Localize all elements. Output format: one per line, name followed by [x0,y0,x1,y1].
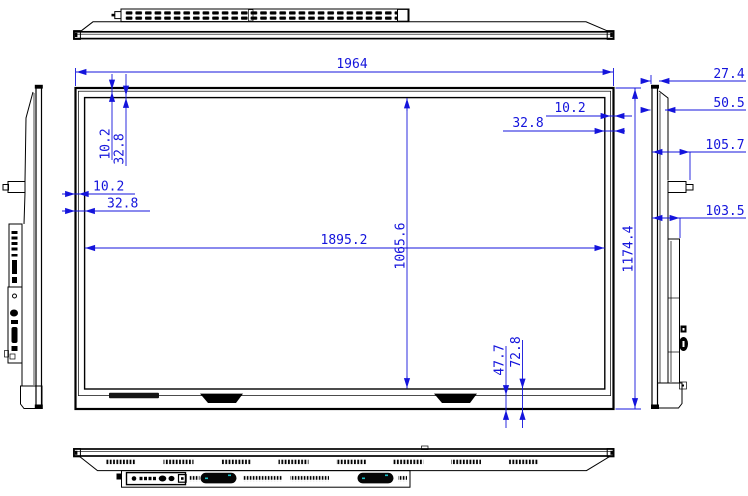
bottom-bezel-insert-right [434,394,477,403]
bottom-view [74,446,614,487]
bottom-io-panel [127,473,187,485]
dim-bezel-left-inner-label: 10.2 [93,180,124,195]
right-back-shell [659,91,680,383]
right-glass-profile [652,88,658,408]
drawing-sheet: 1964 1895.2 1065.6 1174.4 10.2 [0,0,748,496]
dim-overall-width: 1964 [76,57,614,86]
dim-bezel-bottom: 47.7 72.8 [493,336,525,428]
top-body [80,22,610,32]
bottom-bezel-insert-left [200,394,243,403]
dim-bezel-top-inner-label: 10.2 [99,128,114,159]
dimensions: 1964 1895.2 1065.6 1174.4 10.2 [62,57,746,428]
dim-bezel-bottom-inner-label: 47.7 [493,344,508,375]
dim-depth-back: 103.5 [652,204,746,238]
dim-bezel-left-outer-label: 32.8 [107,197,138,212]
dim-active-width-label: 1895.2 [321,233,368,248]
dim-depth-glass: 27.4 [642,67,746,84]
dim-active-height-label: 1065.6 [394,223,409,270]
front-view [76,88,614,409]
left-back-shell [22,92,33,386]
left-port-panel-upper [9,224,22,287]
drawing-canvas: 1964 1895.2 1065.6 1174.4 10.2 [0,0,748,496]
vent-strip-left-tab [115,12,121,19]
left-glass-profile [36,88,42,408]
right-side-view [651,85,693,409]
left-side-button [8,182,25,193]
top-view [74,9,614,39]
dim-active-height: 1065.6 [394,98,409,389]
right-side-button [668,182,686,193]
left-side-view [3,85,43,409]
dim-overall-width-label: 1964 [336,57,367,72]
dim-depth-glass-label: 27.4 [713,67,744,82]
right-top-cap [651,85,659,89]
dim-bezel-top-outer-label: 32.8 [113,133,128,164]
brand-logo [109,393,159,398]
dim-bezel-right-inner-label: 10.2 [554,101,585,116]
bottom-vent-groups [106,459,539,465]
bottom-bar-tab [117,474,122,480]
top-glass-edge [74,32,614,39]
dim-depth-button-label: 105.7 [705,138,744,153]
dim-depth-back-label: 103.5 [705,204,744,219]
dim-active-width: 1895.2 [85,233,605,248]
dim-depth-button: 105.7 [652,138,746,180]
left-port-panel-lower [8,287,22,363]
dim-depth-front-label: 50.5 [713,96,744,111]
vent-strip-end-cap [398,9,409,21]
dim-overall-height: 1174.4 [616,88,642,409]
top-vent-slots [125,10,397,20]
dim-bezel-right-outer-label: 32.8 [512,116,543,131]
outer-frame [76,88,614,409]
dim-overall-height-label: 1174.4 [622,225,637,272]
right-foot [658,383,683,408]
bottom-glass-edge [74,449,614,456]
dim-bezel-bottom-outer-label: 72.8 [509,336,524,367]
left-top-cap [35,85,43,89]
